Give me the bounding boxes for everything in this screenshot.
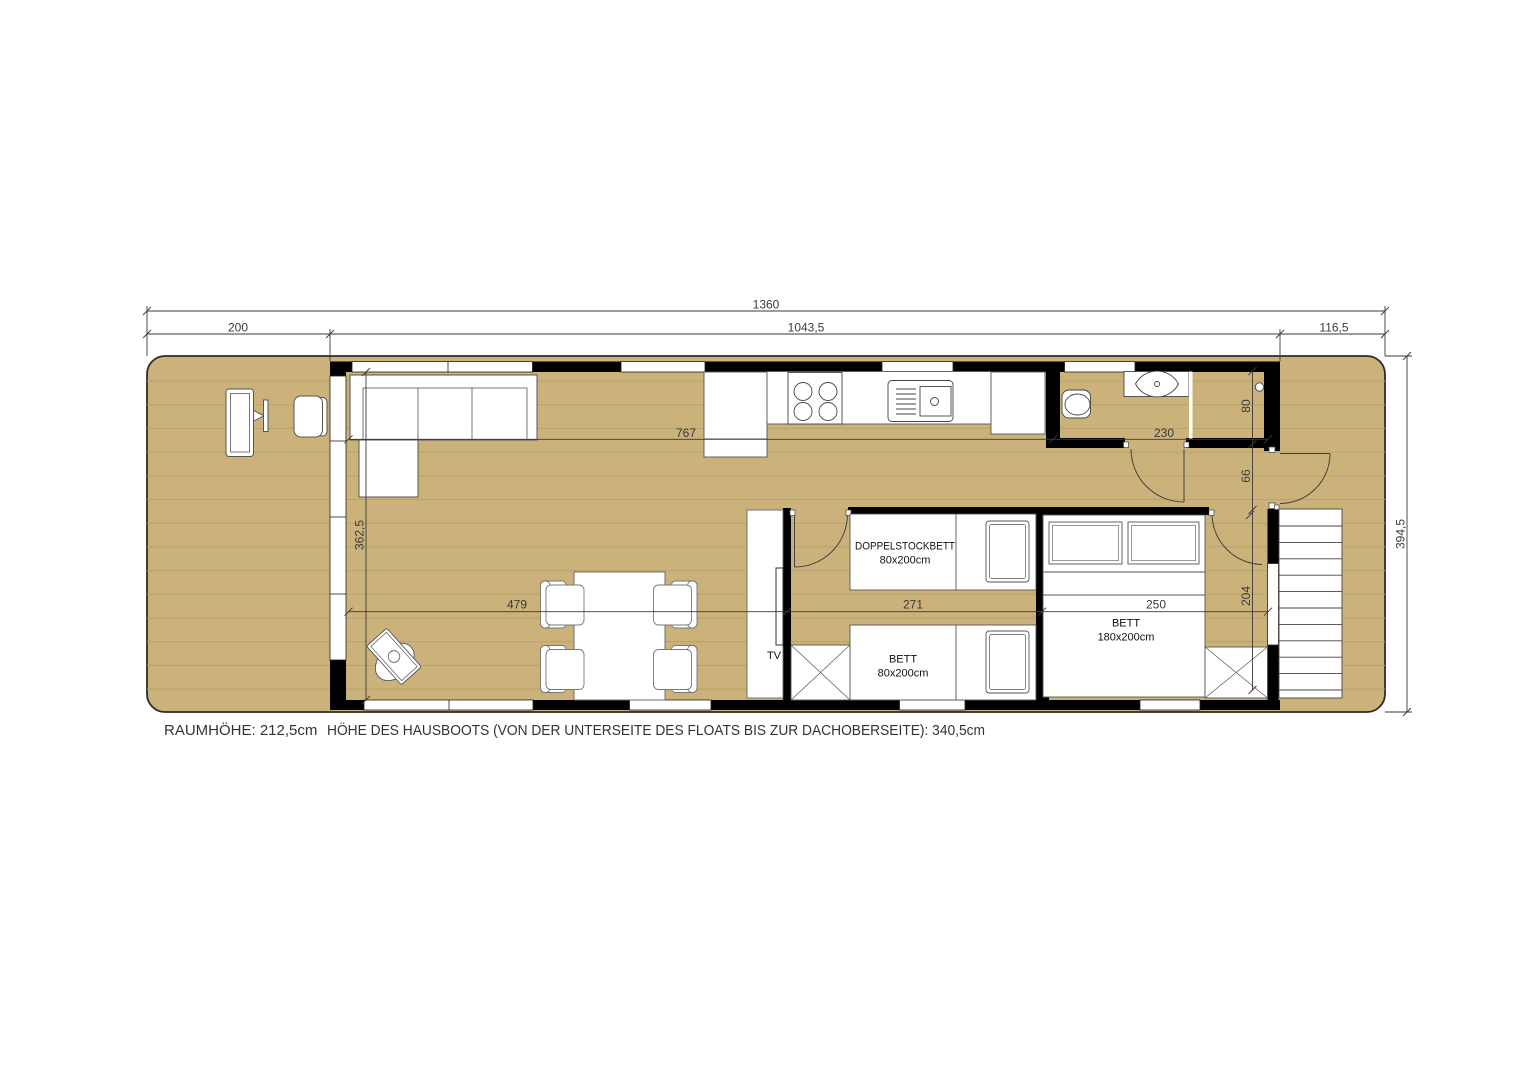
svg-text:394,5: 394,5 [1394, 519, 1408, 549]
svg-text:BETT: BETT [889, 654, 917, 666]
svg-text:230: 230 [1154, 426, 1174, 440]
svg-text:BETT: BETT [1112, 618, 1140, 630]
svg-text:HÖHE DES HAUSBOOTS (VON DER UN: HÖHE DES HAUSBOOTS (VON DER UNTERSEITE D… [327, 721, 985, 739]
svg-text:66: 66 [1239, 469, 1253, 483]
svg-text:80x200cm: 80x200cm [880, 555, 931, 567]
svg-text:DOPPELSTOCKBETT: DOPPELSTOCKBETT [855, 541, 955, 553]
svg-text:200: 200 [228, 321, 248, 335]
svg-text:1360: 1360 [753, 298, 780, 312]
svg-text:80x200cm: 80x200cm [878, 668, 929, 680]
svg-text:479: 479 [507, 598, 527, 612]
svg-text:767: 767 [676, 426, 696, 440]
svg-text:80: 80 [1239, 399, 1253, 413]
svg-text:RAUMHÖHE: 212,5cm: RAUMHÖHE: 212,5cm [164, 721, 317, 739]
svg-text:250: 250 [1146, 598, 1166, 612]
svg-text:204: 204 [1239, 586, 1253, 606]
svg-text:116,5: 116,5 [1319, 321, 1348, 335]
svg-text:362,5: 362,5 [353, 520, 367, 550]
svg-text:1043,5: 1043,5 [788, 321, 825, 335]
svg-text:TV: TV [767, 650, 782, 662]
svg-text:180x200cm: 180x200cm [1098, 632, 1155, 644]
svg-text:271: 271 [903, 598, 923, 612]
